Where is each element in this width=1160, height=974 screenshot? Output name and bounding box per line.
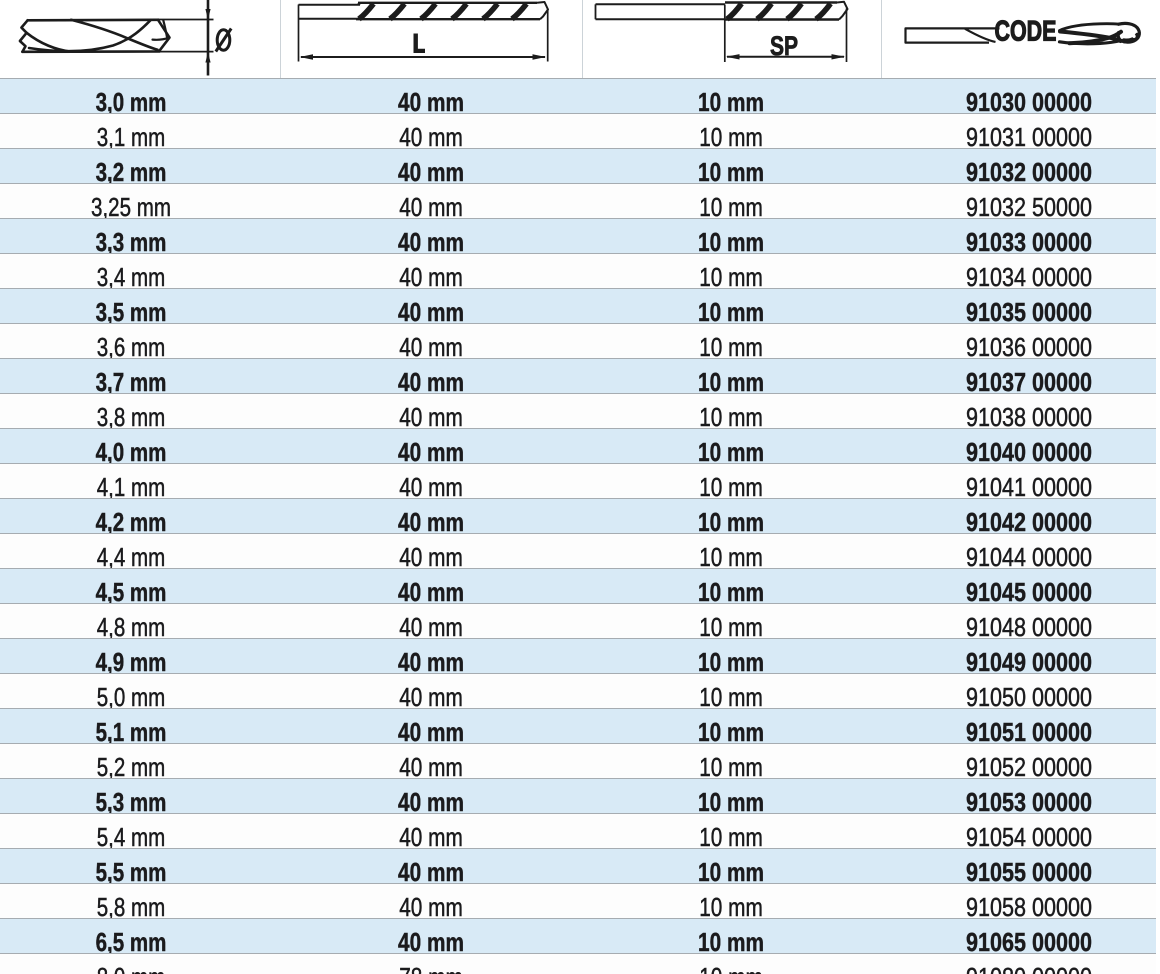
- svg-text:SP: SP: [770, 31, 798, 61]
- svg-text:CODE: CODE: [995, 16, 1057, 48]
